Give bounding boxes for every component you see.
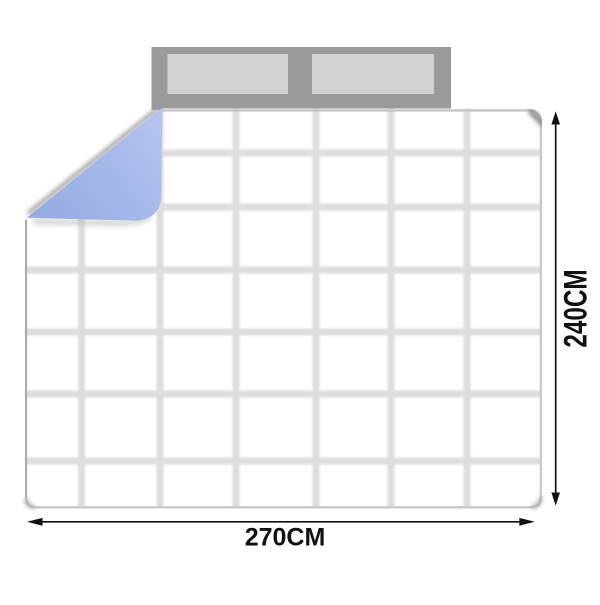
svg-text:270CM: 270CM	[245, 524, 326, 552]
svg-text:240CM: 240CM	[558, 269, 594, 347]
